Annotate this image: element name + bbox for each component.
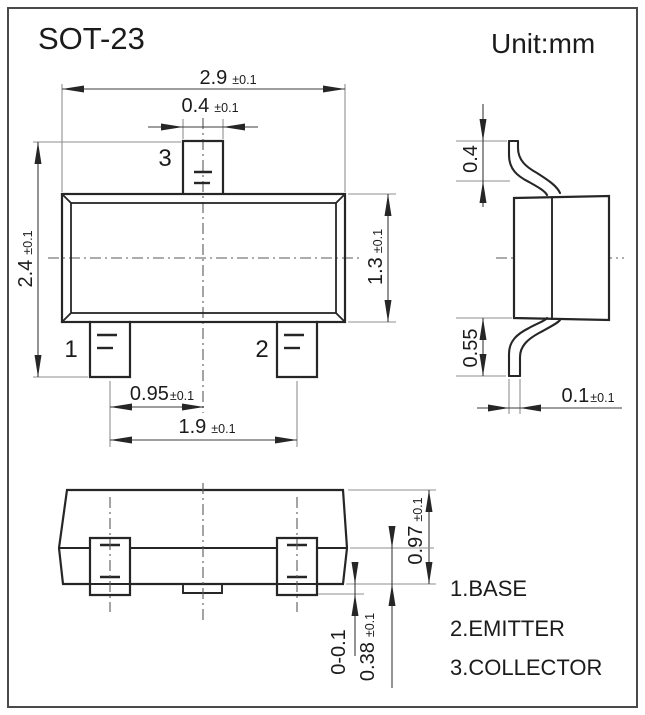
- dim-body-height-label: 1.3±0.1: [365, 229, 387, 285]
- dim-lead-thickness-label: 0.1±0.1: [561, 385, 614, 407]
- dim-lead-thickness: 0.1±0.1: [477, 379, 622, 414]
- dim-lead-foot-height-label: 0.38±0.1: [357, 613, 379, 681]
- dim-body-height: 1.3±0.1: [348, 194, 396, 322]
- dim-total-height-label: 2.4±0.1: [15, 230, 37, 287]
- side-top-lead: [509, 141, 560, 195]
- dim-top-lead-length: 0.4: [456, 104, 510, 207]
- pin-legend: 1.BASE 2.EMITTER 3.COLLECTOR: [450, 576, 602, 680]
- front-view: 3 1 2 2.9±0.1 0.4±0.1 2.4±: [15, 67, 396, 447]
- sot23-outline-drawing: SOT-23 Unit:mm 3 1 2: [0, 0, 645, 715]
- dim-total-height: 2.4±0.1: [15, 142, 181, 377]
- dim-pin-pitch-label: 0.95±0.1: [130, 383, 194, 405]
- drawing-title: SOT-23: [38, 21, 145, 56]
- front-lead1-pin: [90, 322, 130, 377]
- dim-lead3-width: 0.4±0.1: [148, 95, 258, 139]
- bottom-view: 0.97±0.1 0.38±0.1 0-0.1: [59, 483, 436, 688]
- side-body-outline: [514, 196, 609, 320]
- dim-body-side-height-label: 0.97±0.1: [405, 497, 427, 564]
- legend-item-collector: 3.COLLECTOR: [450, 655, 602, 680]
- pin1-label: 1: [64, 336, 77, 363]
- dim-pin-span-label: 1.9±0.1: [178, 416, 235, 438]
- dim-bottom-lead-length: 0.55: [456, 318, 512, 376]
- legend-item-emitter: 2.EMITTER: [450, 616, 565, 641]
- dim-body-width-label: 2.9±0.1: [199, 67, 256, 89]
- sheet-border: [8, 8, 637, 707]
- front-lead2-pin: [277, 322, 317, 377]
- dim-body-width: 2.9±0.1: [62, 67, 345, 192]
- legend-item-base: 1.BASE: [450, 576, 527, 601]
- dim-top-lead-length-label: 0.4: [460, 145, 482, 173]
- dim-standoff-label: 0-0.1: [328, 629, 350, 675]
- dim-lead3-width-label: 0.4±0.1: [181, 95, 238, 117]
- pin2-label: 2: [255, 336, 268, 363]
- pin3-label: 3: [158, 145, 171, 172]
- side-bottom-lead: [509, 318, 560, 376]
- unit-label: Unit:mm: [491, 28, 595, 59]
- dim-pin-span: 1.9±0.1: [110, 416, 297, 444]
- dim-bottom-lead-length-label: 0.55: [460, 329, 482, 368]
- drawing-sheet: SOT-23 Unit:mm 3 1 2: [0, 0, 645, 715]
- bottom-centerlines: [110, 483, 297, 622]
- side-view: 0.4 0.55 0.1±0.1: [456, 104, 624, 414]
